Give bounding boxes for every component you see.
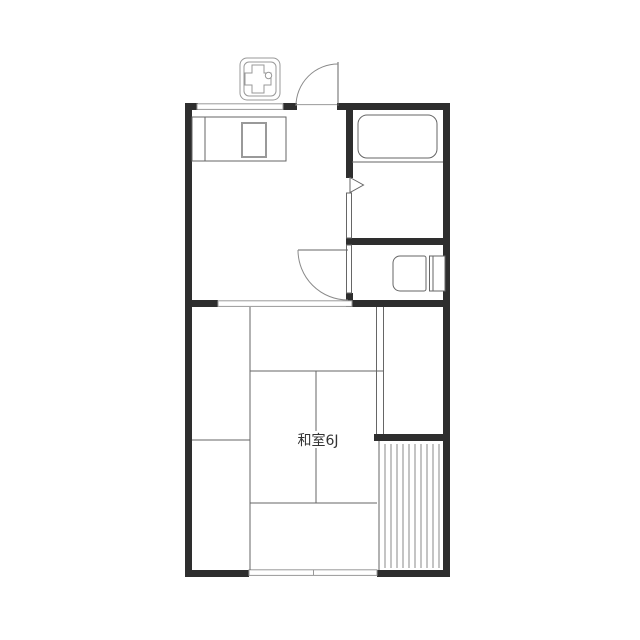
- partition-bath-thin: [347, 193, 352, 238]
- toilet-door-swing-arc: [298, 250, 348, 300]
- room-label-tatami: 和室6J: [297, 432, 338, 449]
- wall-right: [443, 103, 450, 577]
- wall-divider-left: [185, 300, 218, 307]
- kitchen-counter: [192, 117, 286, 161]
- wall-bottom-right: [377, 570, 450, 577]
- counter-outline: [192, 117, 286, 161]
- wall-balcony-top: [374, 434, 443, 441]
- balcony: [379, 441, 439, 570]
- bathroom-door: [350, 178, 364, 193]
- toilet: [393, 256, 445, 291]
- partition-toilet-thin: [347, 245, 352, 293]
- closet-sliding-door: [377, 307, 384, 434]
- kitchen-window: [197, 104, 283, 110]
- kitchen-sink: [242, 123, 266, 157]
- wall-bath-left: [346, 103, 353, 178]
- bathtub: [358, 115, 437, 158]
- balcony-hatch-lines: [385, 444, 439, 568]
- toilet-door: [298, 250, 348, 300]
- wall-top-left: [185, 103, 198, 110]
- tatami-room-label-group: 和室6J: [292, 431, 344, 449]
- wall-top-right: [337, 103, 450, 110]
- bathroom-door-triangle: [350, 178, 364, 193]
- entrance-door-swing-arc: [296, 64, 338, 106]
- tatami-mat-lines: [192, 307, 377, 570]
- toilet-bowl: [393, 256, 426, 291]
- toilet-tank: [430, 256, 446, 291]
- wall-divider-right: [352, 300, 450, 307]
- gas-stove-icon: [240, 58, 280, 100]
- wall-top-mid: [283, 103, 297, 110]
- bathroom: [352, 115, 443, 162]
- exterior-wall: [185, 103, 450, 577]
- wall-bath-toilet: [346, 238, 450, 245]
- tatami-sliding-door: [218, 301, 352, 307]
- floor-plan-canvas: 和室6J: [0, 0, 640, 640]
- wall-bottom-left: [185, 570, 249, 577]
- wall-left: [185, 103, 192, 577]
- entrance-door: [296, 62, 338, 106]
- floor-plan: 和室6J: [0, 0, 640, 640]
- stove-knob-circle: [265, 72, 271, 78]
